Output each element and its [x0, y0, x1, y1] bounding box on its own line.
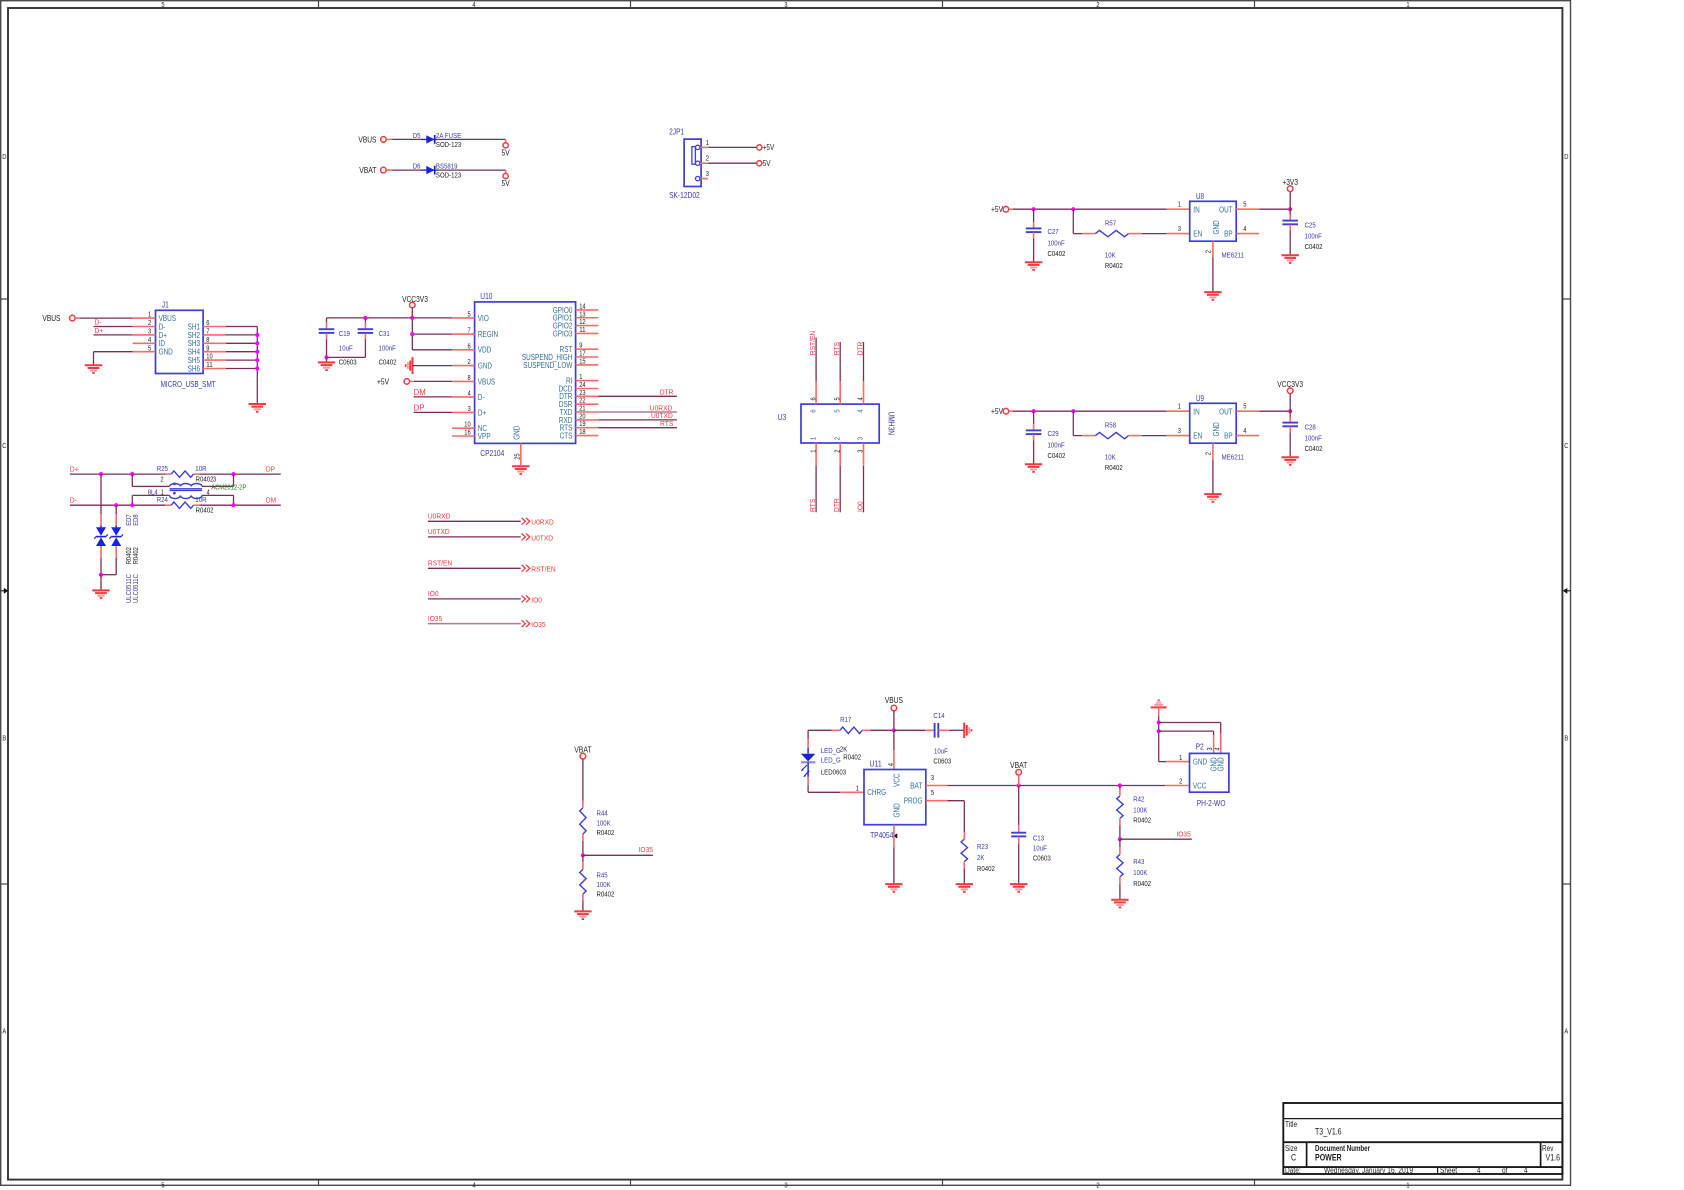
svg-text:CTS: CTS [560, 432, 573, 441]
svg-text:5: 5 [161, 0, 164, 9]
svg-text:100nF: 100nF [1048, 239, 1065, 248]
svg-text:4: 4 [856, 409, 865, 412]
svg-text:1: 1 [1179, 753, 1182, 762]
svg-text:10R: 10R [195, 495, 207, 504]
svg-text:100K: 100K [1133, 806, 1147, 815]
svg-text:CP2104: CP2104 [480, 448, 504, 458]
svg-text:1: 1 [706, 138, 709, 147]
svg-text:3: 3 [468, 404, 471, 413]
svg-text:C0402: C0402 [1305, 242, 1323, 251]
svg-text:R25: R25 [157, 464, 168, 473]
svg-text:U0TXD: U0TXD [651, 413, 673, 420]
svg-text:SUSPEND_LOW: SUSPEND_LOW [523, 361, 572, 370]
svg-text:C: C [1291, 1153, 1297, 1163]
svg-text:1: 1 [1178, 402, 1181, 411]
svg-text:3: 3 [931, 773, 934, 782]
svg-text:2: 2 [832, 437, 841, 440]
svg-text:+5V: +5V [377, 377, 389, 387]
svg-text:ME6211: ME6211 [1222, 251, 1245, 260]
svg-text:VBUS: VBUS [358, 134, 376, 144]
svg-text:IO0: IO0 [428, 591, 439, 598]
svg-text:3: 3 [784, 0, 787, 9]
svg-text:IO0: IO0 [857, 501, 864, 512]
svg-text:2: 2 [1179, 777, 1182, 786]
svg-text:DM: DM [414, 388, 426, 397]
svg-text:R24: R24 [157, 495, 168, 504]
svg-text:BP: BP [1224, 432, 1233, 441]
svg-text:5V: 5V [502, 147, 510, 157]
svg-text:IO35: IO35 [531, 622, 545, 629]
svg-text:C0402: C0402 [379, 357, 397, 366]
svg-text:VBUS: VBUS [478, 377, 495, 386]
svg-text:ULC0511C: ULC0511C [131, 574, 140, 603]
svg-text:T3_V1.6: T3_V1.6 [1315, 1127, 1342, 1137]
svg-text:C0402: C0402 [1048, 249, 1066, 258]
svg-text:R44: R44 [597, 809, 608, 818]
svg-text:4: 4 [207, 490, 210, 497]
svg-text:GND: GND [1212, 220, 1221, 234]
svg-text:2: 2 [1204, 250, 1213, 253]
svg-text:R45: R45 [597, 870, 608, 879]
svg-text:R42: R42 [1133, 795, 1144, 804]
svg-text:RTS: RTS [810, 498, 817, 512]
svg-text:DTR: DTR [834, 498, 841, 512]
svg-text:D5: D5 [413, 131, 421, 140]
svg-text:PH-2-WO: PH-2-WO [1197, 798, 1226, 808]
svg-text:PROG: PROG [904, 797, 923, 806]
svg-text:C13: C13 [1033, 833, 1044, 842]
svg-text:MICRO_USB_SMT: MICRO_USB_SMT [161, 380, 216, 389]
svg-text:GND: GND [478, 362, 492, 371]
svg-text:5: 5 [832, 409, 841, 412]
svg-text:2: 2 [706, 154, 709, 163]
svg-text:J1: J1 [162, 300, 169, 310]
svg-text:R0402: R0402 [1133, 879, 1151, 888]
svg-text:A: A [2, 1026, 6, 1035]
svg-text:100nF: 100nF [1305, 232, 1322, 241]
svg-text:R43: R43 [1133, 857, 1144, 866]
svg-text:of: of [1502, 1166, 1508, 1175]
svg-text:5V: 5V [502, 178, 510, 188]
svg-text:CHRG: CHRG [867, 788, 886, 797]
svg-text:R0402: R0402 [131, 547, 140, 564]
svg-text:5: 5 [931, 788, 934, 797]
svg-text:R57: R57 [1105, 219, 1116, 228]
svg-text:C29: C29 [1048, 429, 1059, 438]
svg-text:D: D [2, 152, 6, 161]
svg-text:2K: 2K [977, 853, 984, 862]
svg-text:B: B [1564, 733, 1568, 742]
svg-text:Wednesday, January 16, 2019: Wednesday, January 16, 2019 [1324, 1166, 1413, 1175]
svg-text:BS5819: BS5819 [436, 162, 458, 171]
svg-text:VCC3V3: VCC3V3 [1277, 379, 1303, 389]
svg-text:GND: GND [1216, 757, 1225, 771]
svg-text:R0402: R0402 [1105, 261, 1123, 270]
svg-text:R0402: R0402 [196, 506, 214, 515]
svg-text:VCC: VCC [1193, 781, 1207, 790]
svg-text:U0TXD: U0TXD [531, 535, 553, 542]
svg-text:3: 3 [856, 437, 865, 440]
svg-text:10K: 10K [1105, 251, 1116, 260]
svg-text:2: 2 [468, 357, 471, 366]
svg-text:DM: DM [266, 498, 276, 505]
svg-text:U10: U10 [480, 291, 492, 301]
svg-text:IO35: IO35 [639, 847, 653, 854]
svg-text:RTS: RTS [834, 342, 841, 356]
svg-text:1: 1 [1178, 200, 1181, 209]
svg-text:D+: D+ [478, 408, 487, 417]
svg-text:D-: D- [478, 393, 485, 402]
svg-text:U0TXD: U0TXD [428, 529, 450, 536]
svg-text:C28: C28 [1305, 423, 1316, 432]
svg-text:R23: R23 [977, 842, 988, 851]
svg-text:5: 5 [468, 309, 471, 318]
svg-text:POWER: POWER [1315, 1153, 1342, 1163]
svg-text:100K: 100K [597, 818, 611, 827]
svg-text:C0402: C0402 [1048, 451, 1066, 460]
svg-text:5: 5 [161, 1181, 164, 1190]
svg-text:R0402: R0402 [977, 864, 995, 873]
svg-text:4: 4 [472, 0, 475, 9]
svg-text:IO0: IO0 [531, 597, 542, 604]
svg-text:EN: EN [1193, 432, 1202, 441]
svg-text:P2: P2 [1196, 742, 1204, 752]
svg-text:2A FUSE: 2A FUSE [436, 131, 461, 140]
svg-text:3: 3 [1178, 426, 1181, 435]
svg-text:VIO: VIO [478, 314, 489, 323]
svg-text:C0603: C0603 [339, 357, 357, 366]
svg-text:VBUS: VBUS [885, 695, 903, 705]
svg-text:SH6: SH6 [188, 364, 201, 373]
svg-text:C: C [1564, 441, 1568, 450]
svg-text:1: 1 [1406, 0, 1409, 9]
svg-text:4: 4 [1243, 224, 1246, 233]
svg-text:ED8: ED8 [131, 514, 140, 525]
svg-text:U0RXD: U0RXD [428, 514, 451, 521]
svg-text:C0402: C0402 [1305, 444, 1323, 453]
svg-text:D+: D+ [95, 328, 104, 335]
svg-text:VDD: VDD [478, 346, 492, 355]
svg-text:C27: C27 [1048, 227, 1059, 236]
svg-text:SOD-123: SOD-123 [436, 140, 461, 149]
svg-text:4: 4 [1212, 747, 1221, 750]
svg-text:7: 7 [468, 326, 471, 335]
svg-text:GND: GND [892, 803, 901, 817]
svg-text:VPP: VPP [478, 432, 491, 441]
svg-text:Size: Size [1285, 1144, 1298, 1153]
svg-text:B: B [2, 733, 6, 742]
svg-text:V1.6: V1.6 [1546, 1153, 1561, 1163]
svg-text:10uF: 10uF [1033, 844, 1047, 853]
svg-text:R58: R58 [1105, 421, 1116, 430]
svg-text:8: 8 [468, 373, 471, 382]
svg-text:ME6211: ME6211 [1222, 453, 1245, 462]
svg-text:IO35: IO35 [1176, 832, 1190, 839]
svg-text:U11: U11 [870, 758, 883, 768]
svg-text:10uF: 10uF [339, 343, 353, 352]
svg-text:D+: D+ [70, 466, 79, 473]
svg-text:U8: U8 [1196, 192, 1204, 201]
svg-text:SOD-123: SOD-123 [436, 171, 461, 180]
svg-text:BP: BP [1224, 230, 1233, 239]
svg-text:VBAT: VBAT [359, 165, 376, 175]
svg-text:GND: GND [1193, 758, 1207, 767]
svg-text:D-: D- [95, 319, 103, 326]
svg-text:100K: 100K [597, 880, 611, 889]
svg-text:100K: 100K [1133, 868, 1147, 877]
svg-text:VCC3V3: VCC3V3 [402, 294, 428, 304]
svg-text:R0402: R0402 [843, 753, 861, 762]
svg-text:D6: D6 [413, 162, 421, 171]
svg-text:+5V: +5V [763, 143, 775, 152]
svg-text:A: A [1564, 1026, 1568, 1035]
svg-text:R0402: R0402 [597, 890, 615, 899]
svg-text:6: 6 [808, 409, 817, 412]
svg-text:IN: IN [1193, 205, 1200, 214]
svg-text:R0402: R0402 [1133, 815, 1151, 824]
svg-text:2: 2 [1204, 452, 1213, 455]
svg-text:LED0603: LED0603 [821, 768, 846, 777]
svg-text:OUT: OUT [1219, 205, 1233, 214]
svg-text:100nF: 100nF [1305, 434, 1322, 443]
svg-text:U9: U9 [1196, 394, 1204, 403]
svg-text:LED_G: LED_G [821, 746, 841, 755]
svg-text:DP: DP [414, 403, 425, 412]
svg-text:ACM2012-2P: ACM2012-2P [211, 483, 246, 492]
svg-text:Document Number: Document Number [1315, 1144, 1371, 1153]
svg-text:R17: R17 [840, 715, 851, 724]
svg-text:DTR: DTR [660, 390, 674, 397]
svg-text:5V: 5V [763, 159, 771, 168]
svg-text:10uF: 10uF [934, 747, 948, 756]
svg-text:LED_G: LED_G [821, 756, 841, 765]
svg-text:DP: DP [266, 466, 276, 473]
svg-text:5: 5 [1243, 402, 1246, 411]
svg-text:C19: C19 [339, 329, 350, 338]
svg-text:2JP1: 2JP1 [669, 126, 684, 136]
svg-text:U0RXD: U0RXD [650, 405, 673, 412]
svg-text:GND: GND [1212, 422, 1221, 436]
svg-text:4: 4 [1243, 426, 1246, 435]
svg-text:VBAT: VBAT [1010, 760, 1027, 770]
svg-text:3: 3 [784, 1181, 787, 1190]
svg-text:1: 1 [856, 783, 859, 792]
svg-text:+3V3: +3V3 [1282, 177, 1298, 187]
svg-text:C0603: C0603 [1033, 854, 1051, 863]
svg-text:TP4054: TP4054 [870, 830, 894, 840]
svg-text:2: 2 [161, 477, 164, 484]
svg-text:GND: GND [513, 425, 522, 439]
svg-text:C25: C25 [1305, 221, 1316, 230]
svg-text:1: 1 [1406, 1181, 1409, 1190]
svg-text:VBUS: VBUS [42, 313, 60, 323]
svg-text:DTR: DTR [857, 342, 864, 356]
svg-text:Date:: Date: [1285, 1166, 1301, 1175]
svg-text:IO35: IO35 [428, 616, 442, 623]
svg-text:10R: 10R [195, 464, 207, 473]
svg-text:OUT: OUT [1219, 407, 1233, 416]
svg-text:+5V: +5V [991, 204, 1003, 214]
svg-text:Rev: Rev [1542, 1144, 1553, 1153]
svg-text:REGIN: REGIN [478, 330, 498, 339]
svg-text:C31: C31 [379, 329, 390, 338]
svg-text:D: D [1564, 152, 1568, 161]
svg-text:4: 4 [468, 388, 471, 397]
svg-text:U0RXD: U0RXD [531, 520, 554, 527]
svg-text:IN: IN [1193, 407, 1200, 416]
svg-text:SK-12D02: SK-12D02 [669, 190, 700, 200]
svg-text:GPIO3: GPIO3 [553, 329, 573, 338]
svg-text:100nF: 100nF [1048, 441, 1065, 450]
svg-text:1: 1 [808, 437, 817, 440]
svg-text:BAT: BAT [910, 782, 922, 791]
svg-text:3: 3 [706, 169, 709, 178]
svg-text:4: 4 [1524, 1166, 1528, 1175]
svg-text:4: 4 [472, 1181, 475, 1190]
svg-text:+5V: +5V [991, 406, 1003, 416]
svg-text:UMH3N: UMH3N [887, 412, 897, 436]
svg-text:C0603: C0603 [933, 757, 951, 766]
svg-text:D-: D- [70, 498, 78, 505]
svg-text:RST/EN: RST/EN [428, 561, 452, 568]
svg-text:U3: U3 [778, 412, 787, 422]
svg-text:3: 3 [1178, 224, 1181, 233]
svg-text:R0402: R0402 [1105, 463, 1123, 472]
svg-text:4: 4 [1477, 1166, 1481, 1175]
svg-text:Title: Title [1285, 1120, 1298, 1129]
svg-text:RST/EN: RST/EN [531, 567, 555, 574]
svg-text:C: C [2, 441, 6, 450]
svg-text:VCC: VCC [892, 773, 901, 787]
svg-text:4: 4 [886, 763, 895, 766]
svg-text:2: 2 [1096, 0, 1099, 9]
svg-text:RST/EN: RST/EN [810, 331, 817, 355]
svg-text:R0402: R0402 [597, 828, 615, 837]
svg-text:5: 5 [1243, 200, 1246, 209]
svg-text:100nF: 100nF [379, 343, 396, 352]
svg-text:EN: EN [1193, 230, 1202, 239]
svg-text:2: 2 [1096, 1181, 1099, 1190]
svg-text:RTS: RTS [660, 421, 674, 428]
svg-text:C14: C14 [933, 711, 944, 720]
svg-text:GND: GND [159, 348, 173, 357]
svg-text:10K: 10K [1105, 453, 1116, 462]
svg-text:Sheet: Sheet [1440, 1166, 1458, 1175]
svg-text:6: 6 [468, 341, 471, 350]
